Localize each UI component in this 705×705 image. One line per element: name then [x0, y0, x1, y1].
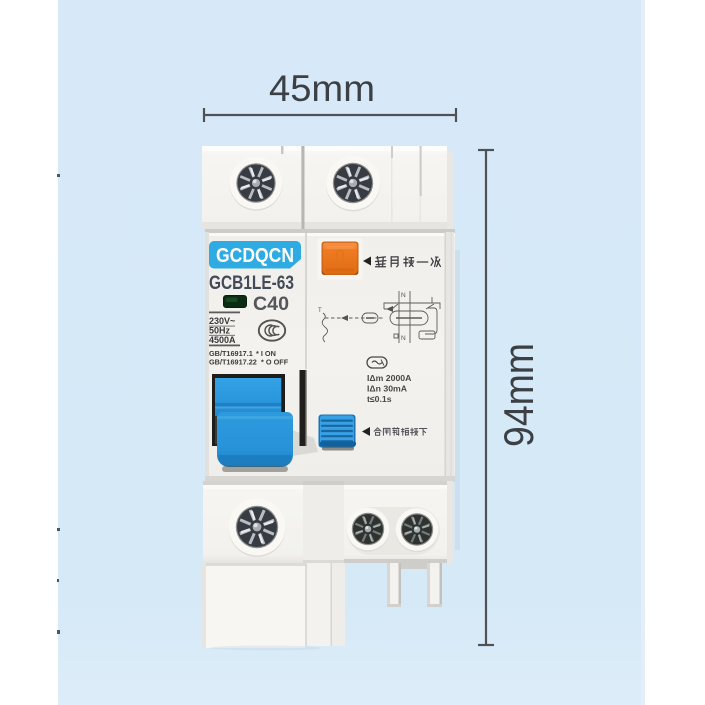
svg-text:GB/T16917.22: GB/T16917.22	[209, 358, 257, 367]
svg-text:45mm: 45mm	[269, 67, 375, 109]
svg-text:GCB1LE-63: GCB1LE-63	[209, 273, 294, 294]
svg-text:* O OFF: * O OFF	[261, 358, 289, 367]
svg-text:GCDQCN: GCDQCN	[216, 245, 294, 267]
svg-text:IΔm 2000A: IΔm 2000A	[367, 373, 412, 383]
svg-text:N: N	[401, 292, 406, 299]
svg-text:N: N	[401, 335, 406, 342]
svg-text:230V~: 230V~	[209, 316, 235, 326]
svg-text:4500A: 4500A	[209, 335, 236, 345]
svg-text:94mm: 94mm	[495, 343, 542, 447]
svg-text:50Hz: 50Hz	[209, 326, 231, 336]
svg-text:t≤0.1s: t≤0.1s	[367, 394, 392, 404]
svg-text:C40: C40	[253, 293, 289, 315]
svg-text:T: T	[318, 308, 322, 314]
svg-text:IΔn 30mA: IΔn 30mA	[367, 384, 408, 394]
